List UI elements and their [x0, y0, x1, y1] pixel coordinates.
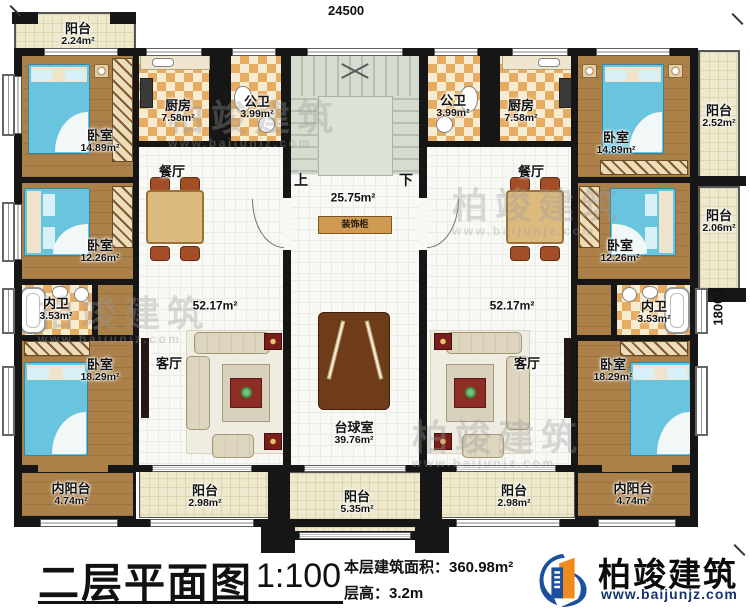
window [456, 519, 560, 527]
side-table [434, 333, 452, 350]
window [456, 465, 556, 472]
stair-flight-top [289, 56, 421, 96]
side-table [434, 433, 452, 450]
wall-center-right [419, 48, 427, 472]
kitchen-sink [152, 58, 174, 67]
wall-innerbath-right [611, 282, 617, 341]
decor-cabinet: 装饰柜 [318, 216, 392, 234]
kitchen-sink [538, 58, 560, 67]
room-label: 内卫3.53m² [637, 300, 670, 326]
washbasin [622, 287, 637, 302]
room-label: 厨房7.58m² [504, 99, 537, 125]
stair-up-label: 上 [294, 170, 308, 190]
wardrobe [600, 160, 688, 175]
armchair [212, 434, 254, 458]
billiard-table [318, 312, 390, 410]
room-label: 阳台2.98m² [188, 484, 221, 510]
room-label: 卧室12.26m² [80, 239, 119, 265]
wall-kitchen-right [424, 141, 574, 147]
dimension-top: 24500 [328, 3, 364, 18]
room-label: 卧室18.29m² [593, 358, 632, 384]
wall-kitchen-left [136, 141, 286, 147]
bed [24, 362, 88, 456]
room-label: 餐厅 [518, 165, 544, 179]
window [14, 76, 22, 134]
brand-logo-icon [534, 548, 592, 612]
drawing-title: 二层平面图 [38, 549, 253, 609]
window [40, 519, 118, 527]
wall-h [575, 335, 698, 341]
wall-h [575, 279, 698, 285]
wardrobe [24, 341, 90, 356]
wall-h [14, 177, 136, 183]
floor-area-text: 本层建筑面积：360.98m² [344, 556, 513, 577]
window [434, 48, 478, 56]
stair-flight-right [392, 96, 420, 172]
window [299, 532, 411, 539]
room-label: 台球室39.76m² [334, 421, 373, 447]
bay-window [695, 288, 708, 334]
room-label: 卧室14.89m² [80, 129, 119, 155]
kitchen-counter [502, 55, 572, 70]
dining-chair [150, 246, 170, 261]
wall-stub-left [212, 48, 228, 144]
washbasin [74, 287, 89, 302]
window [596, 48, 670, 56]
window [152, 465, 252, 472]
plant [465, 387, 476, 398]
wall-stub-right [482, 48, 498, 144]
bed [630, 362, 692, 456]
room-label: 内阳台4.74m² [613, 482, 652, 508]
room-label: 阳台2.06m² [702, 209, 735, 235]
room-label: 内阳台4.74m² [51, 482, 90, 508]
dining-table [506, 190, 564, 244]
tv-cabinet [141, 338, 149, 418]
room-label: 内卫3.53m² [39, 297, 72, 323]
decor-cabinet-label: 装饰柜 [341, 219, 368, 229]
nightstand [94, 64, 109, 78]
inner-balcony-opening [38, 465, 108, 472]
bay-window [2, 74, 15, 136]
balcony-mid-right [698, 186, 740, 290]
armchair [462, 434, 504, 458]
stair-flight-left [289, 96, 317, 172]
dining-chair [180, 246, 200, 261]
balcony-separator [694, 176, 746, 186]
room-label: 卧室12.26m² [600, 239, 639, 265]
side-table [264, 433, 282, 450]
drawing-scale: 1:100 [256, 557, 341, 596]
wall-h [14, 335, 136, 341]
hall-door-left [283, 198, 291, 250]
nightstand [668, 64, 683, 78]
bay-window [2, 288, 15, 334]
window [146, 48, 202, 56]
room-label: 公卫3.99m² [436, 94, 469, 120]
sofa [194, 332, 270, 354]
wall-unit-right [571, 48, 577, 465]
window [150, 519, 254, 527]
inner-balcony-opening [602, 465, 672, 472]
room-label: 餐厅 [159, 165, 185, 179]
toilet [642, 286, 658, 299]
bay-window [695, 366, 708, 436]
wall-h [14, 279, 136, 285]
room-label: 公卫3.99m² [240, 95, 273, 121]
dimension-right: 18000 [711, 289, 726, 325]
bedroom-entry-right [575, 282, 611, 338]
dining-chair [540, 246, 560, 261]
bay-window [2, 366, 15, 436]
window [307, 48, 403, 56]
brand-url: www.baijunjz.com [601, 586, 738, 602]
dining-table [146, 190, 204, 244]
stove [140, 78, 153, 108]
hall-door-right [419, 198, 427, 250]
room-label: 阳台5.35m² [340, 490, 373, 516]
stair-landing [318, 96, 393, 176]
room-area-label: 52.17m² [490, 299, 535, 312]
title-underline [38, 601, 343, 604]
plant [241, 387, 252, 398]
room-label: 客厅 [514, 357, 540, 371]
column [268, 465, 290, 527]
wall-center-left [283, 48, 291, 472]
room-label: 阳台2.98m² [497, 484, 530, 510]
floor-plan-canvas: 24500 18000 装饰柜 [0, 0, 750, 612]
window [232, 48, 276, 56]
bedroom-entry-left [98, 282, 136, 338]
hall-area-label: 25.75m² [331, 191, 376, 204]
room-area-label: 52.17m² [193, 299, 238, 312]
bay-window [2, 202, 15, 262]
room-label: 客厅 [156, 357, 182, 371]
wall-innerbath-left [92, 282, 98, 341]
wardrobe [579, 186, 600, 248]
wardrobe [620, 341, 688, 356]
wall-unit-left [133, 48, 139, 465]
room-label: 阳台2.24m² [61, 22, 94, 48]
stair-down-label: 下 [399, 170, 413, 190]
corner-tick [731, 13, 743, 25]
room-label: 阳台2.52m² [702, 104, 735, 130]
nightstand [582, 64, 597, 78]
window [598, 519, 676, 527]
kitchen-counter [140, 55, 210, 70]
balcony-post [110, 12, 136, 24]
column [420, 465, 442, 527]
window [14, 204, 22, 260]
floor-height-text: 层高：3.2m [344, 582, 423, 603]
sofa [446, 332, 522, 354]
room-label: 卧室18.29m² [80, 358, 119, 384]
sofa [186, 356, 210, 430]
dining-chair [510, 246, 530, 261]
side-table [264, 333, 282, 350]
window [44, 48, 118, 56]
room-label: 卧室14.89m² [596, 131, 635, 157]
wall-h [575, 177, 698, 183]
window [304, 465, 406, 472]
window [512, 48, 568, 56]
room-label: 厨房7.58m² [161, 99, 194, 125]
